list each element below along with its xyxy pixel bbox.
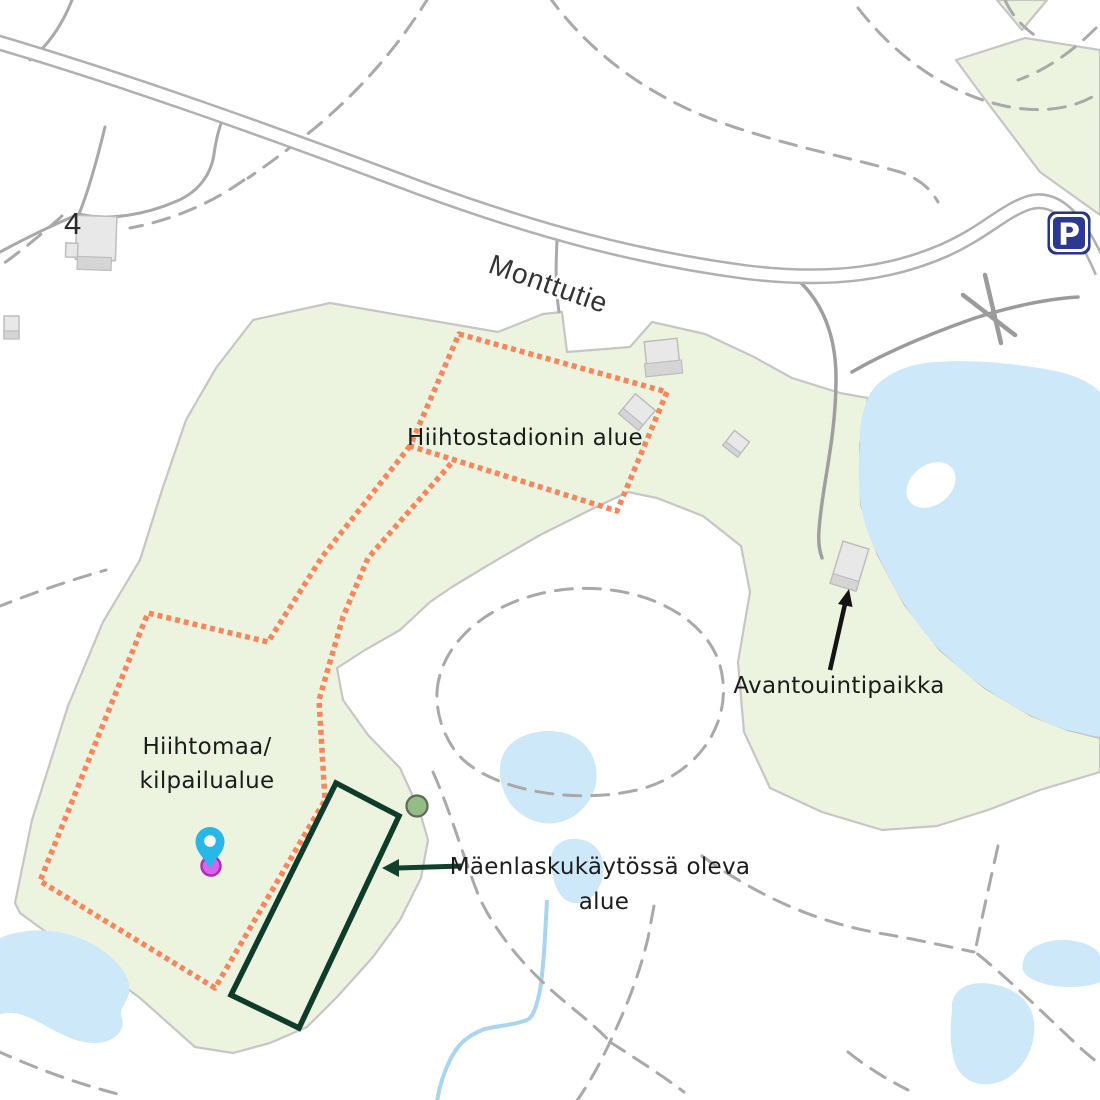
stadium-building [642,338,682,377]
sledding-area-label-line1: Mäenlaskukäytössä oleva [450,854,751,880]
parking-icon: P [1048,212,1090,254]
trail-marker-dot [407,796,428,817]
ski-stadium-label: Hiihtostadionin alue [407,425,643,451]
ski-area-map: Monttutie [0,0,1100,1100]
building-small-west [4,316,19,339]
competition-area-label-line1: Hiihtomaa/ [142,734,271,760]
parking-letter: P [1058,218,1080,253]
house-number-label: 4 [64,206,81,241]
sledding-area-label-line2: alue [579,889,629,915]
ice-swimming-label: Avantouintipaikka [733,673,944,699]
competition-area-label-line2: kilpailualue [140,768,275,794]
map-canvas: Monttutie [0,0,1100,1100]
